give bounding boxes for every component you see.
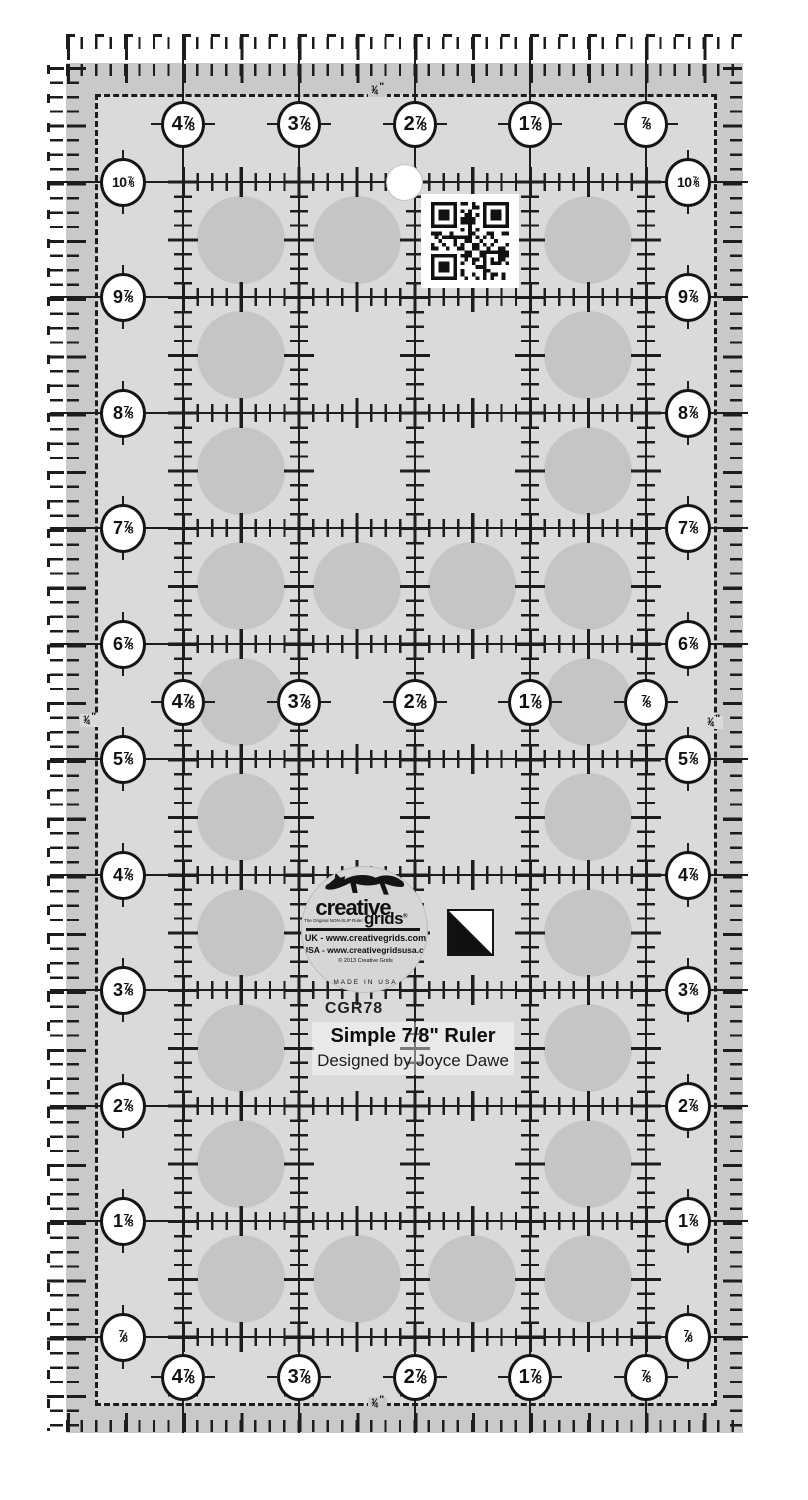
quarter-inch-label: 1⁄4" — [704, 716, 723, 729]
measure-badge: 47⁄8 — [100, 851, 146, 900]
measure-badge: 97⁄8 — [665, 273, 711, 322]
measure-badge: 7⁄8 — [624, 101, 668, 148]
measure-badge: 7⁄8 — [624, 679, 668, 726]
logo-url-usa: USA - www.creativegridsusa.com — [302, 945, 428, 955]
measure-badge: 37⁄8 — [100, 966, 146, 1015]
edge-scale-top-outer-half — [67, 37, 744, 60]
product-title: Simple 7/8" Ruler — [312, 1025, 514, 1048]
measure-badge: 47⁄8 — [161, 101, 205, 148]
measure-badge: 57⁄8 — [665, 735, 711, 784]
creative-grids-logo: creative The Original NON-SLIP Ruler gri… — [301, 866, 428, 993]
half-square-triangle-icon — [447, 909, 494, 956]
logo-tagline: The Original NON-SLIP Ruler — [304, 918, 363, 923]
logo-made-in: MADE IN USA — [302, 979, 428, 986]
product-title-block: Simple 7/8" Ruler Designed by Joyce Dawe — [312, 1022, 514, 1075]
edge-scale-right-inner-half — [723, 67, 742, 1427]
measure-badge: 97⁄8 — [100, 273, 146, 322]
measure-badge: 87⁄8 — [665, 389, 711, 438]
measure-badge: 77⁄8 — [665, 504, 711, 553]
edge-scale-bottom-inner-half — [67, 1413, 744, 1432]
measure-badge: 27⁄8 — [100, 1082, 146, 1131]
measure-badge: 37⁄8 — [277, 1354, 321, 1401]
measure-badge: 57⁄8 — [100, 735, 146, 784]
product-designer: Designed by Joyce Dawe — [312, 1051, 514, 1071]
edge-scale-left-outer-half — [47, 67, 64, 1427]
edge-scale-left-inner-half — [67, 67, 86, 1427]
measure-badge: 47⁄8 — [161, 1354, 205, 1401]
measure-badge: 17⁄8 — [508, 101, 552, 148]
logo-copyright: © 2013 Creative Grids — [302, 958, 428, 964]
measure-badge: 47⁄8 — [665, 851, 711, 900]
measure-badge: 77⁄8 — [100, 504, 146, 553]
measure-badge: 37⁄8 — [665, 966, 711, 1015]
measure-badge: 27⁄8 — [665, 1082, 711, 1131]
logo-divider — [306, 928, 420, 931]
logo-url-uk: UK - www.creativegrids.com — [302, 933, 428, 943]
measure-badge: 27⁄8 — [393, 101, 437, 148]
fox-icon — [324, 871, 406, 898]
measure-badge: 17⁄8 — [508, 679, 552, 726]
product-photo: 47⁄837⁄827⁄817⁄87⁄847⁄837⁄827⁄817⁄87⁄847… — [0, 0, 808, 1500]
seam-dashed-rect — [95, 94, 717, 1406]
quarter-inch-label: 1⁄4" — [368, 1397, 387, 1410]
logo-brand-bottom: grids® — [364, 909, 407, 929]
measure-badge: 107⁄8 — [665, 158, 711, 207]
measure-badge: 27⁄8 — [393, 679, 437, 726]
measure-badge: 87⁄8 — [100, 389, 146, 438]
edge-scale-top-inner-half — [67, 64, 744, 83]
measure-badge: 7⁄8 — [100, 1313, 146, 1362]
measure-badge: 47⁄8 — [161, 679, 205, 726]
product-sku: CGR78 — [308, 1000, 400, 1018]
hanging-hole — [386, 164, 423, 201]
measure-badge: 7⁄8 — [665, 1313, 711, 1362]
measure-badge: 67⁄8 — [100, 620, 146, 669]
measure-badge: 17⁄8 — [100, 1197, 146, 1246]
measure-badge: 17⁄8 — [665, 1197, 711, 1246]
measure-badge: 107⁄8 — [100, 158, 146, 207]
measure-badge: 7⁄8 — [624, 1354, 668, 1401]
measure-badge: 27⁄8 — [393, 1354, 437, 1401]
measure-badge: 17⁄8 — [508, 1354, 552, 1401]
measure-badge: 67⁄8 — [665, 620, 711, 669]
quarter-inch-label: 1⁄4" — [368, 84, 387, 97]
quarter-inch-label: 1⁄4" — [80, 714, 99, 727]
qr-code — [421, 194, 519, 288]
measure-badge: 37⁄8 — [277, 101, 321, 148]
measure-badge: 37⁄8 — [277, 679, 321, 726]
